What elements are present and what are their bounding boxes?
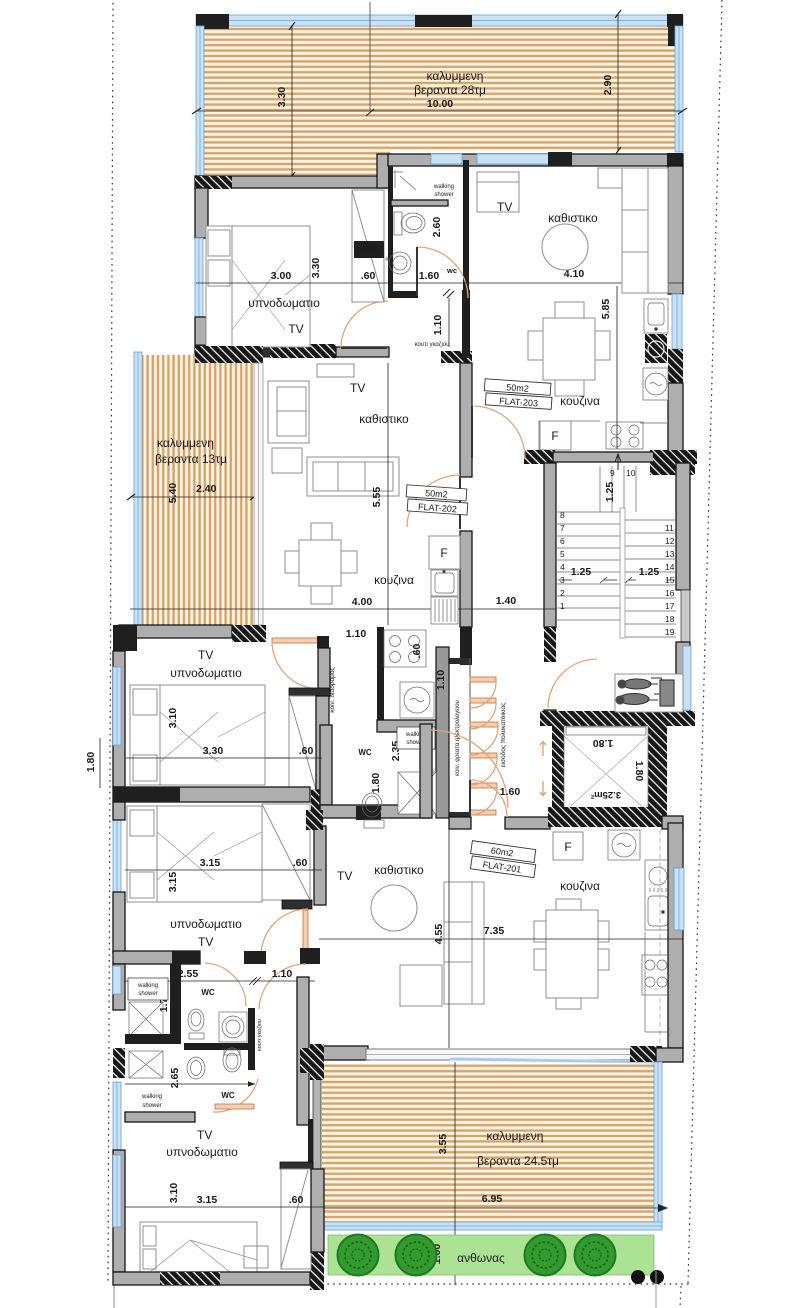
svg-text:4.00: 4.00 [352, 596, 373, 608]
svg-text:7: 7 [560, 523, 565, 533]
svg-text:TV: TV [497, 200, 512, 214]
svg-text:TV: TV [288, 322, 303, 336]
svg-text:walking: walking [141, 1094, 162, 1100]
svg-text:.60: .60 [293, 857, 308, 869]
svg-text:καθιστικο: καθιστικο [374, 863, 424, 877]
svg-text:καλυμμενη: καλυμμενη [157, 436, 214, 450]
svg-text:F: F [440, 546, 447, 560]
svg-text:1.80: 1.80 [370, 773, 382, 794]
svg-text:wc: wc [446, 266, 457, 275]
svg-text:9: 9 [610, 468, 615, 478]
svg-text:5: 5 [560, 549, 565, 559]
svg-text:υπνοδωματιο: υπνοδωματιο [166, 1145, 238, 1159]
svg-text:2: 2 [560, 588, 565, 598]
svg-text:3.30: 3.30 [203, 745, 224, 757]
svg-text:3.15: 3.15 [200, 857, 221, 869]
svg-text:βεραντα 24.5τμ: βεραντα 24.5τμ [477, 1154, 559, 1168]
svg-text:10.00: 10.00 [427, 98, 453, 110]
svg-text:1: 1 [560, 601, 565, 611]
svg-text:shower: shower [142, 1103, 161, 1109]
svg-text:υπνοδωματιο: υπνοδωματιο [248, 296, 320, 310]
svg-text:2.90: 2.90 [602, 75, 614, 96]
svg-text:10: 10 [626, 468, 636, 478]
svg-text:TV: TV [337, 869, 352, 883]
svg-text:WC: WC [221, 1091, 235, 1100]
svg-text:2.60: 2.60 [431, 217, 443, 238]
svg-text:.60: .60 [361, 270, 376, 282]
svg-text:7.35: 7.35 [484, 925, 505, 937]
svg-text:5.55: 5.55 [371, 487, 383, 508]
svg-text:υπνοδωματιο: υπνοδωματιο [170, 917, 242, 931]
svg-text:.60: .60 [299, 745, 314, 757]
svg-text:1.10: 1.10 [272, 968, 293, 980]
svg-text:TV: TV [198, 648, 213, 662]
svg-text:1.60: 1.60 [500, 786, 521, 798]
svg-text:κουζινα: κουζινα [560, 394, 600, 408]
svg-text:3.15: 3.15 [167, 872, 179, 893]
svg-text:καθιστικο: καθιστικο [359, 412, 409, 426]
svg-text:1.80: 1.80 [633, 761, 645, 782]
svg-text:walking: walking [137, 983, 158, 989]
svg-text:κουτι γκαζιου: κουτι γκαζιου [415, 342, 450, 348]
svg-text:3.00: 3.00 [271, 270, 292, 282]
svg-text:13: 13 [665, 549, 675, 559]
svg-text:3.30: 3.30 [276, 87, 288, 108]
svg-text:ανθωνας: ανθωνας [457, 1251, 505, 1265]
svg-text:3.15: 3.15 [197, 1194, 218, 1206]
svg-text:14: 14 [665, 562, 675, 572]
svg-text:καλυμμενη: καλυμμενη [427, 69, 484, 83]
svg-text:1.10: 1.10 [346, 628, 367, 640]
svg-text:11: 11 [665, 523, 674, 533]
svg-text:κοιν. φρεατα ηλεκτρολογειου: κοιν. φρεατα ηλεκτρολογειου [455, 700, 461, 776]
svg-text:18: 18 [665, 614, 675, 624]
svg-text:κουτι γκαζιου: κουτι γκαζιου [257, 1019, 263, 1051]
svg-text:1.60: 1.60 [419, 270, 440, 282]
svg-text:1.10: 1.10 [435, 670, 447, 691]
svg-text:TV: TV [350, 381, 365, 395]
svg-text:3.55: 3.55 [437, 1134, 449, 1155]
svg-text:.60: .60 [411, 644, 423, 659]
svg-text:υπνοδωματιο: υπνοδωματιο [170, 666, 242, 680]
svg-text:εισοδος πολυκατοικιας: εισοδος πολυκατοικιας [500, 703, 507, 768]
svg-text:WC: WC [358, 748, 372, 757]
svg-text:κουζινα: κουζινα [374, 573, 414, 587]
svg-text:F: F [551, 429, 558, 443]
svg-text:50m2: 50m2 [425, 488, 448, 500]
svg-text:2.40: 2.40 [196, 483, 217, 495]
svg-text:WC: WC [201, 988, 215, 997]
svg-text:1.25: 1.25 [571, 566, 592, 578]
svg-text:6.95: 6.95 [482, 1193, 503, 1205]
svg-text:3.10: 3.10 [168, 1183, 180, 1204]
svg-text:TV: TV [198, 935, 213, 949]
svg-text:1.10: 1.10 [432, 315, 444, 336]
svg-text:καλυμμενη: καλυμμενη [487, 1129, 544, 1143]
svg-text:.60: .60 [289, 1194, 304, 1206]
svg-text:16: 16 [665, 588, 675, 598]
svg-text:TV: TV [197, 1128, 212, 1142]
svg-text:4: 4 [560, 562, 565, 572]
svg-text:5.40: 5.40 [167, 483, 179, 504]
svg-text:καθιστικο: καθιστικο [548, 211, 598, 225]
svg-text:50m2: 50m2 [506, 382, 529, 394]
svg-text:6: 6 [560, 536, 565, 546]
svg-text:4.55: 4.55 [433, 924, 445, 945]
svg-text:1.80: 1.80 [593, 737, 614, 749]
svg-text:walking: walking [433, 184, 454, 190]
svg-text:19: 19 [665, 627, 675, 637]
svg-text:3.30: 3.30 [310, 258, 322, 279]
svg-text:shower: shower [138, 991, 157, 997]
svg-text:1.80: 1.80 [85, 752, 97, 773]
svg-text:1.25: 1.25 [639, 566, 660, 578]
svg-text:17: 17 [665, 601, 675, 611]
svg-text:1.25: 1.25 [604, 482, 616, 503]
svg-text:1.40: 1.40 [496, 595, 517, 607]
svg-text:3.25m²: 3.25m² [591, 789, 621, 800]
svg-text:κοιν. διαδρομος: κοιν. διαδρομος [329, 667, 336, 712]
svg-text:βεραντα 13τμ: βεραντα 13τμ [155, 452, 227, 466]
svg-text:2.65: 2.65 [169, 1068, 181, 1089]
svg-text:5.85: 5.85 [600, 299, 612, 320]
svg-text:3.10: 3.10 [167, 708, 179, 729]
svg-text:shower: shower [434, 192, 453, 198]
svg-text:8: 8 [560, 510, 565, 520]
svg-text:κουζινα: κουζινα [560, 879, 600, 893]
svg-text:F: F [564, 840, 571, 854]
svg-text:12: 12 [665, 536, 675, 546]
svg-text:ΝΤΜ: ΝΤΜ [363, 248, 376, 254]
svg-text:βεραντα 28τμ: βεραντα 28τμ [414, 83, 486, 97]
